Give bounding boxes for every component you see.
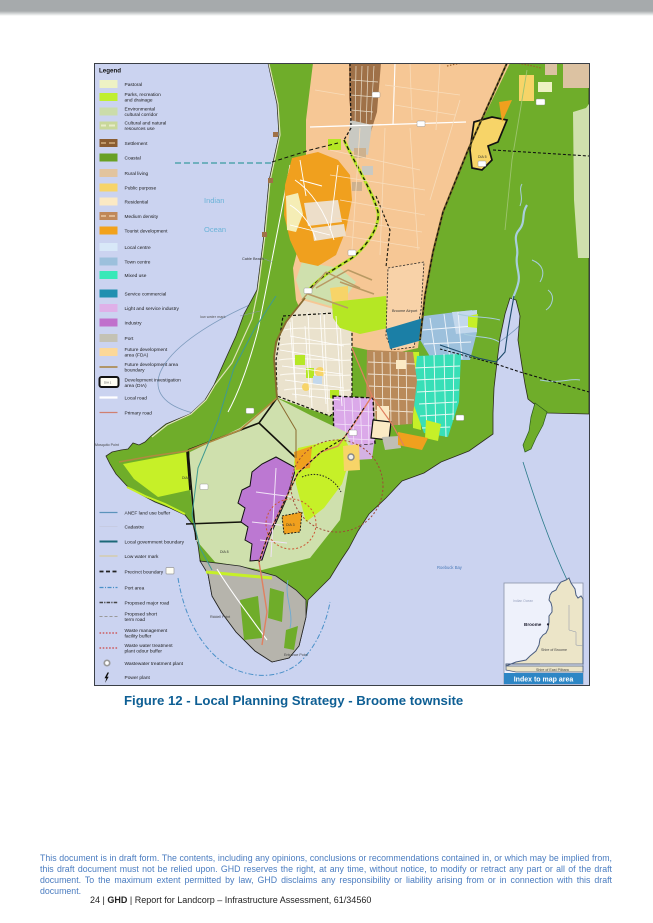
svg-text:Cadastre: Cadastre <box>125 524 145 530</box>
svg-text:Broome Airport: Broome Airport <box>392 309 418 313</box>
svg-text:boundary: boundary <box>125 368 146 374</box>
svg-text:Ocean: Ocean <box>204 225 226 234</box>
svg-text:Port area: Port area <box>125 585 145 591</box>
svg-text:Pastoral: Pastoral <box>125 82 143 88</box>
svg-text:Development investigation: Development investigation <box>125 378 182 384</box>
svg-text:Future development area: Future development area <box>125 362 179 368</box>
svg-text:resources use: resources use <box>125 126 155 132</box>
svg-text:DIA 3: DIA 3 <box>286 523 295 527</box>
svg-text:Shire of East Pilbara: Shire of East Pilbara <box>536 668 569 672</box>
svg-text:plant odour buffer: plant odour buffer <box>125 648 163 654</box>
svg-text:DIA 7: DIA 7 <box>182 476 191 480</box>
svg-text:ANEF land use buffer: ANEF land use buffer <box>125 510 171 516</box>
svg-text:Settlement: Settlement <box>125 141 149 147</box>
svg-text:cultural corridor: cultural corridor <box>125 112 158 118</box>
svg-text:Local centre: Local centre <box>125 245 151 251</box>
svg-text:Low water mark: Low water mark <box>125 554 159 560</box>
svg-text:DIA 5: DIA 5 <box>478 155 487 159</box>
svg-text:Shire of Broome: Shire of Broome <box>541 648 567 652</box>
svg-text:Residential: Residential <box>125 199 149 205</box>
svg-text:Local government boundary: Local government boundary <box>125 539 185 545</box>
svg-text:Medium density: Medium density <box>125 214 159 220</box>
svg-text:Public purpose: Public purpose <box>125 185 157 191</box>
svg-text:Waste water treatment: Waste water treatment <box>125 643 174 649</box>
svg-text:facility buffer: facility buffer <box>125 633 152 639</box>
svg-text:Indian: Indian <box>204 196 224 205</box>
svg-text:Waste management: Waste management <box>125 628 168 634</box>
svg-text:low water mark: low water mark <box>200 315 226 319</box>
svg-text:DIA 8: DIA 8 <box>220 550 229 554</box>
svg-text:Future development: Future development <box>125 347 168 353</box>
svg-text:Parks, recreation: Parks, recreation <box>125 92 162 98</box>
svg-text:term road: term road <box>125 617 146 623</box>
svg-text:Light and service industry: Light and service industry <box>125 306 180 312</box>
svg-text:Cultural and natural: Cultural and natural <box>125 121 167 127</box>
svg-text:Port: Port <box>125 336 134 342</box>
svg-text:Local road: Local road <box>125 396 148 402</box>
svg-text:and drainage: and drainage <box>125 97 153 103</box>
svg-text:Mixed use: Mixed use <box>125 273 147 279</box>
svg-text:area (FDA): area (FDA) <box>125 352 149 358</box>
svg-text:Legend: Legend <box>99 68 121 75</box>
svg-text:Service commercial: Service commercial <box>125 291 167 297</box>
svg-text:Tourist development: Tourist development <box>125 228 169 234</box>
svg-text:Rural living: Rural living <box>125 171 149 177</box>
svg-text:Environmental: Environmental <box>125 107 156 113</box>
svg-text:Broome: Broome <box>524 622 542 627</box>
svg-text:area (DIA): area (DIA) <box>125 383 148 389</box>
svg-text:Wastewater treatment plant: Wastewater treatment plant <box>125 661 184 667</box>
svg-text:Indian Ocean: Indian Ocean <box>513 599 533 603</box>
svg-text:Index to map area: Index to map area <box>514 677 574 684</box>
svg-text:Entrance Point: Entrance Point <box>284 653 308 657</box>
svg-text:Power plant: Power plant <box>125 675 151 681</box>
svg-text:Precinct boundary: Precinct boundary <box>125 569 164 575</box>
svg-text:Proposed short: Proposed short <box>125 611 158 617</box>
svg-text:Riddell Point: Riddell Point <box>210 615 230 619</box>
svg-text:DIA 1: DIA 1 <box>104 381 112 385</box>
svg-text:Primary road: Primary road <box>125 411 153 417</box>
svg-text:Cable Beach: Cable Beach <box>242 257 264 261</box>
svg-text:Town centre: Town centre <box>125 259 151 265</box>
svg-text:Coastal: Coastal <box>125 155 141 161</box>
svg-text:Proposed major road: Proposed major road <box>125 600 170 606</box>
svg-text:Roebuck Bay: Roebuck Bay <box>437 565 463 570</box>
svg-text:Mosquito Point: Mosquito Point <box>95 443 119 447</box>
svg-text:Industry: Industry <box>125 320 143 326</box>
